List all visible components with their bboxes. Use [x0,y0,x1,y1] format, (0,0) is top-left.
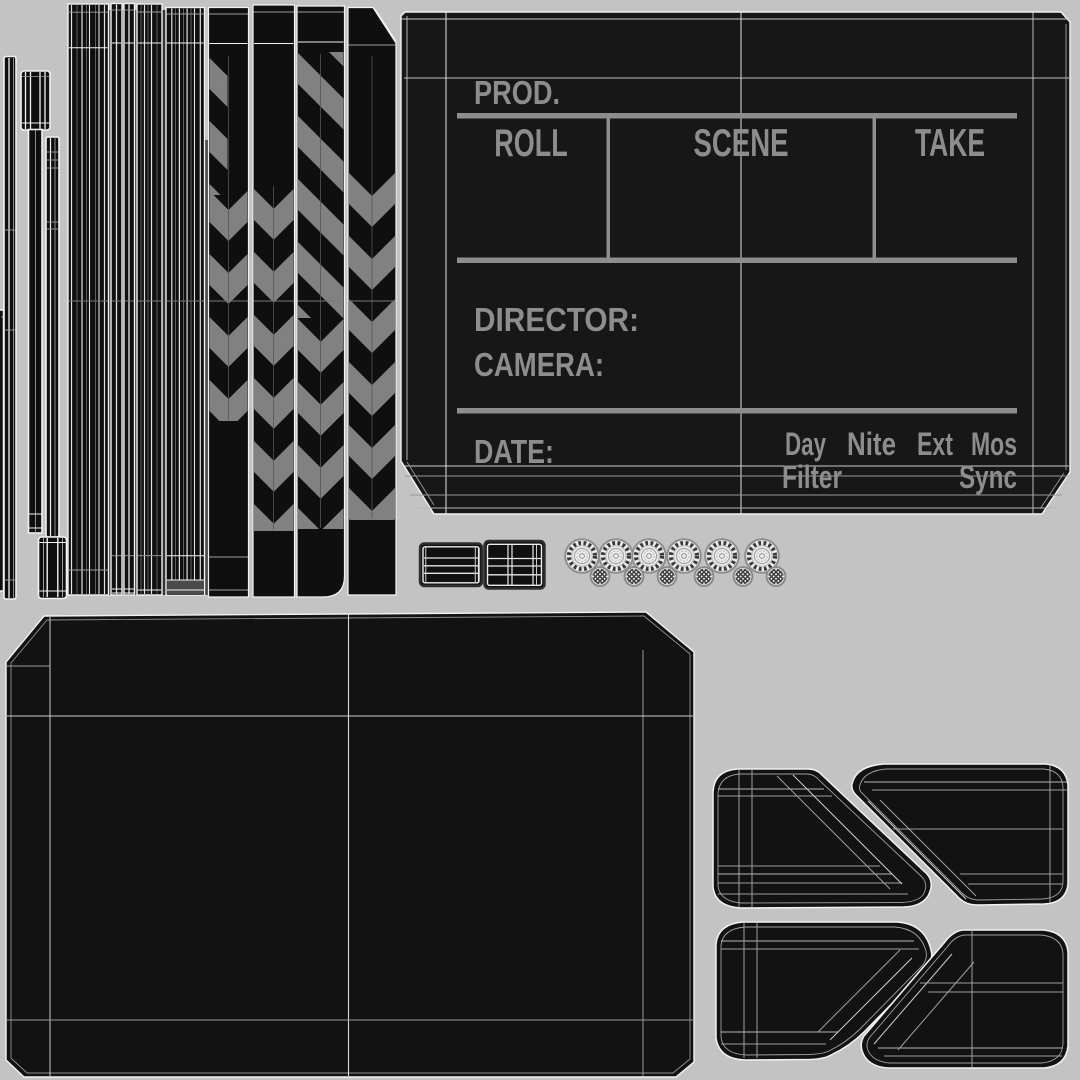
svg-text:ROLL: ROLL [494,122,568,165]
svg-text:SCENE: SCENE [694,122,789,165]
svg-text:Ext: Ext [917,426,953,462]
svg-text:Day: Day [785,426,826,462]
svg-text:DATE:: DATE: [474,433,554,470]
svg-text:TAKE: TAKE [915,122,985,165]
svg-text:Filter: Filter [782,459,842,495]
svg-text:CAMERA:: CAMERA: [474,346,604,383]
svg-text:DIRECTOR:: DIRECTOR: [474,301,639,338]
svg-text:PROD.: PROD. [474,74,560,111]
svg-text:Sync: Sync [959,459,1017,495]
svg-text:Mos: Mos [971,426,1017,462]
svg-text:Nite: Nite [847,426,896,462]
